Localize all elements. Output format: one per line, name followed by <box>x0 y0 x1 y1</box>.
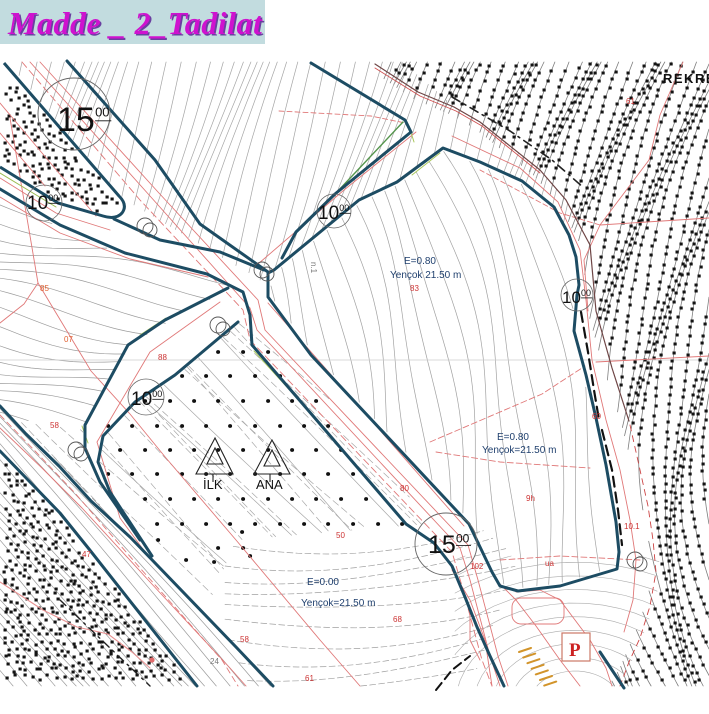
svg-text:ANA: ANA <box>256 477 283 492</box>
svg-text:9h: 9h <box>526 494 535 503</box>
svg-text:E=0.80: E=0.80 <box>404 256 436 267</box>
svg-text:00: 00 <box>581 288 591 298</box>
svg-text:10: 10 <box>318 203 339 224</box>
svg-text:88: 88 <box>158 353 167 362</box>
svg-text:E=0.80: E=0.80 <box>497 432 529 443</box>
svg-text:n.1: n.1 <box>309 262 318 274</box>
svg-text:10: 10 <box>562 288 581 307</box>
svg-text:Yençok=21.50 m: Yençok=21.50 m <box>482 445 556 456</box>
svg-text:İLK: İLK <box>203 477 223 492</box>
svg-text:47: 47 <box>82 550 91 559</box>
svg-text:50: 50 <box>336 531 345 540</box>
svg-text:REKREA: REKREA <box>663 71 709 86</box>
svg-text:85: 85 <box>40 284 49 293</box>
svg-text:00: 00 <box>48 193 58 203</box>
svg-text:102: 102 <box>470 562 484 571</box>
svg-text:68: 68 <box>393 615 402 624</box>
svg-text:ua: ua <box>545 559 554 568</box>
svg-text:10.1: 10.1 <box>624 522 640 531</box>
svg-text:E=0.00: E=0.00 <box>307 577 339 588</box>
svg-text:61: 61 <box>626 97 635 106</box>
svg-text:15: 15 <box>57 101 95 139</box>
svg-text:07: 07 <box>64 335 73 344</box>
svg-text:58: 58 <box>240 635 249 644</box>
svg-text:Yençok 21.50 m: Yençok 21.50 m <box>390 270 461 281</box>
svg-text:Yençok=21.50 m: Yençok=21.50 m <box>301 598 375 609</box>
svg-text:83: 83 <box>410 284 419 293</box>
svg-text:00: 00 <box>152 389 162 399</box>
svg-text:58: 58 <box>50 421 59 430</box>
svg-text:10: 10 <box>131 389 152 410</box>
svg-text:24: 24 <box>210 657 219 666</box>
svg-text:00: 00 <box>339 203 349 213</box>
svg-text:15: 15 <box>428 531 456 559</box>
svg-text:80: 80 <box>400 484 409 493</box>
svg-text:00: 00 <box>456 532 470 546</box>
svg-text:60: 60 <box>592 412 601 421</box>
svg-text:61: 61 <box>305 674 314 683</box>
svg-text:00: 00 <box>95 105 109 120</box>
svg-text:10: 10 <box>27 193 48 214</box>
svg-text:P: P <box>569 640 581 661</box>
